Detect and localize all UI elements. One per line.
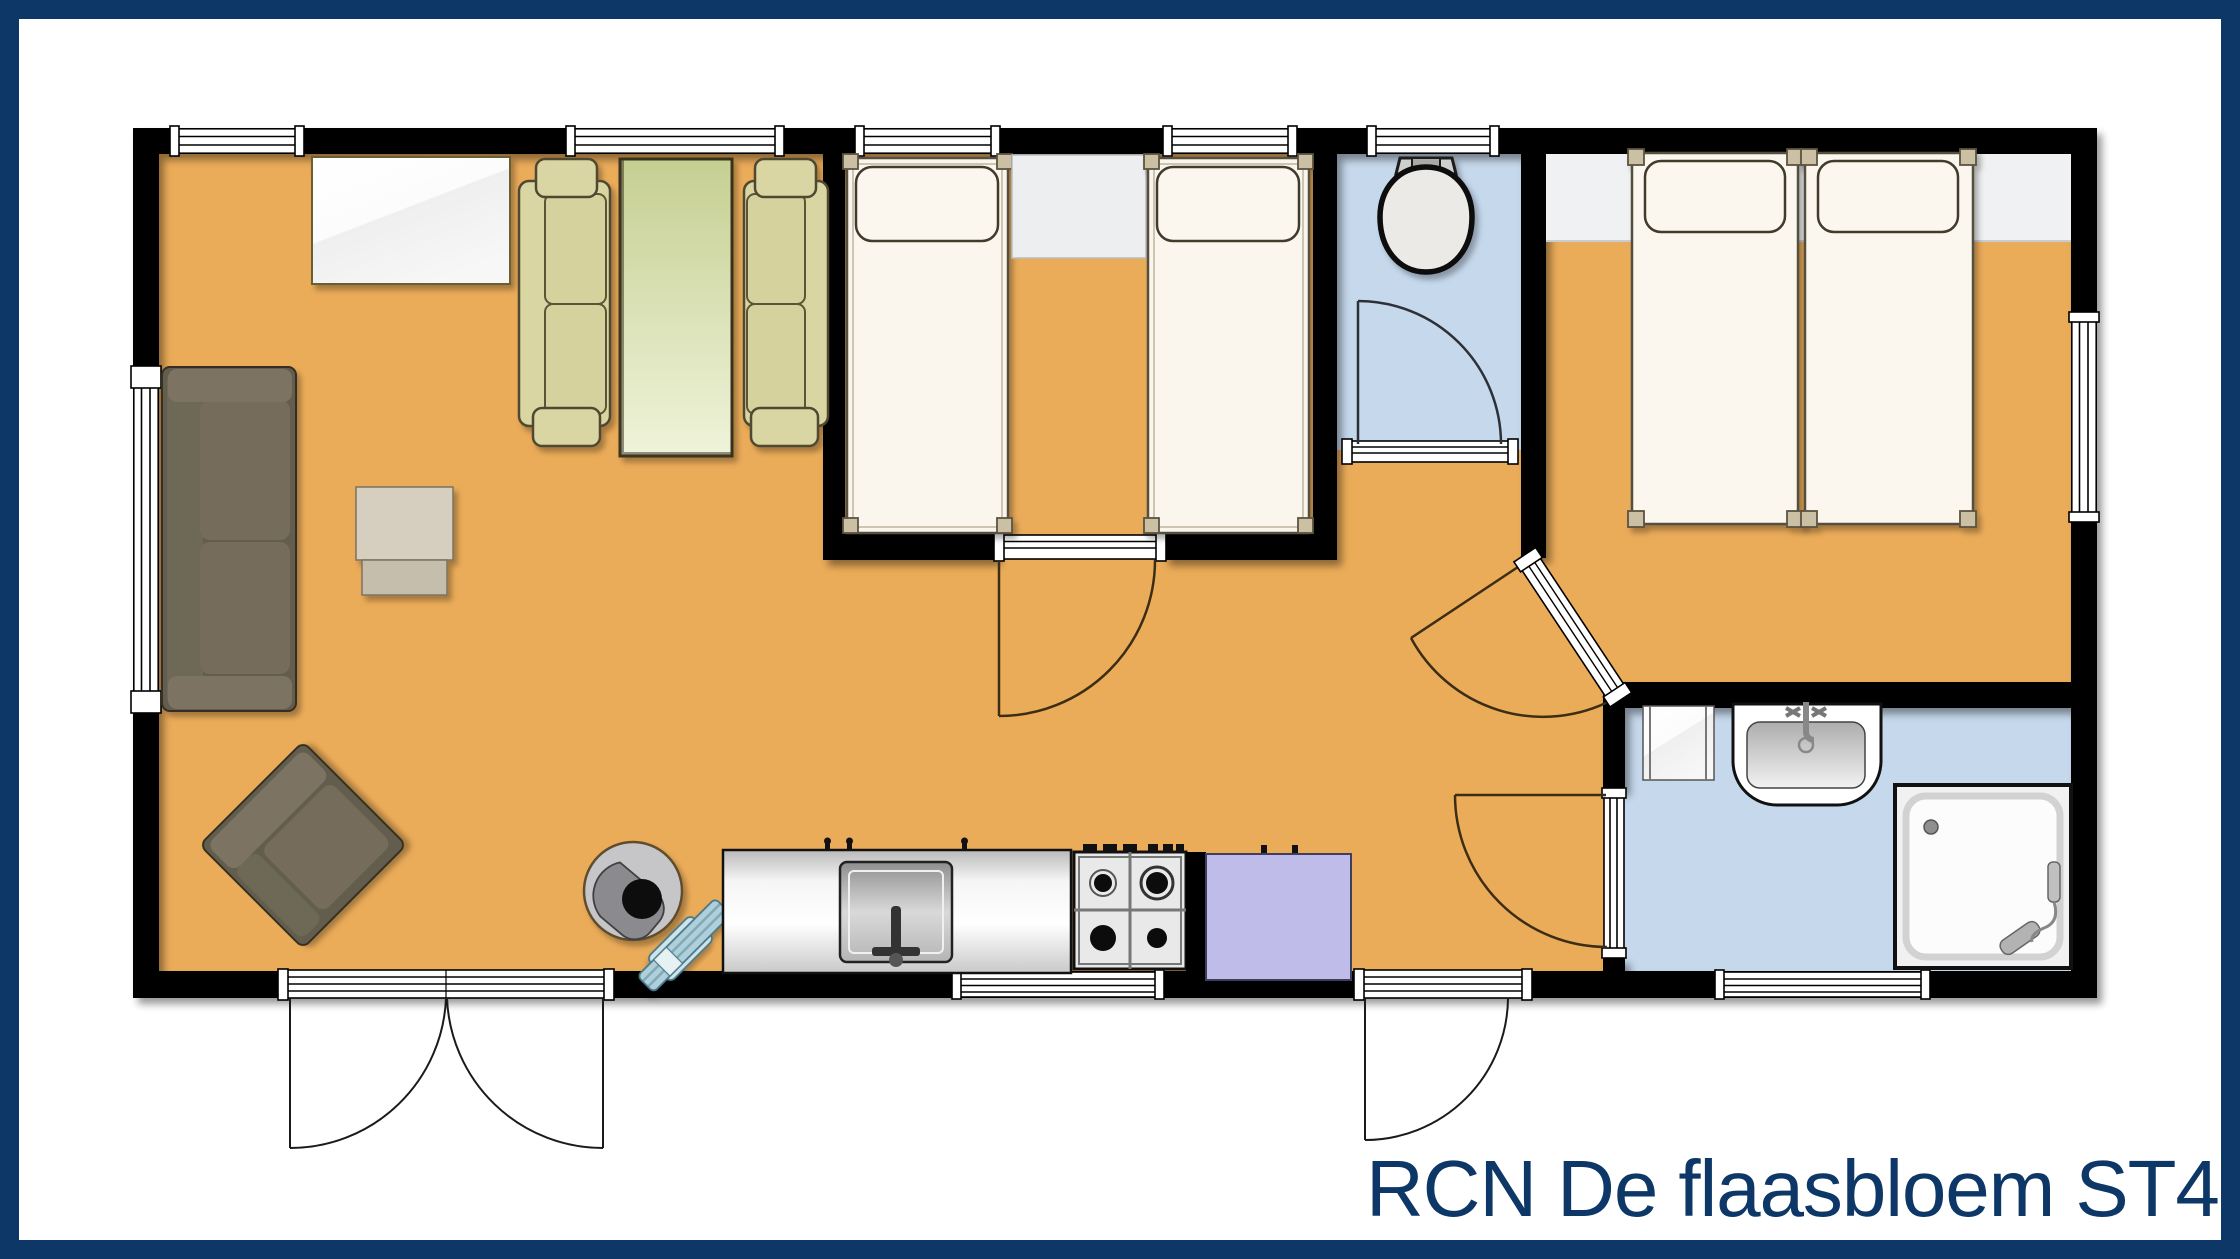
svg-text:RCN De flaasbloem ST4: RCN De flaasbloem ST4 [1366,1144,2219,1233]
